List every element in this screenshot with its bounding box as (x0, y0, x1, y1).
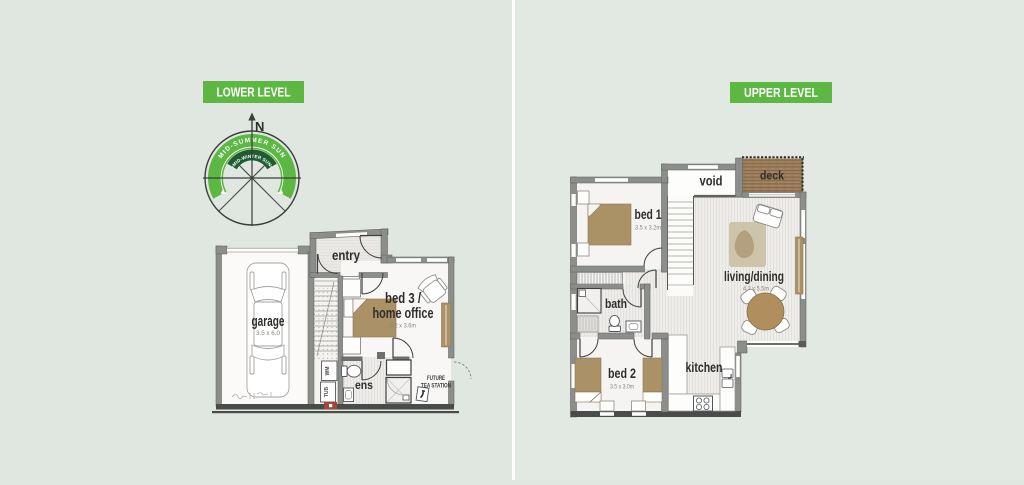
svg-text:deck: deck (760, 171, 785, 183)
svg-text:TEA STATION: TEA STATION (421, 383, 451, 390)
svg-text:entry: entry (332, 248, 360, 263)
svg-text:3.5 x 3.2m: 3.5 x 3.2m (635, 225, 661, 232)
svg-text:4.2 x 3.6m: 4.2 x 3.6m (390, 323, 416, 330)
svg-text:living/dining: living/dining (724, 269, 784, 284)
svg-text:LOWER LEVEL: LOWER LEVEL (217, 86, 291, 100)
svg-text:3.5 x 6.0: 3.5 x 6.0 (256, 330, 281, 337)
svg-text:WM: WM (325, 367, 331, 376)
svg-text:bed 2: bed 2 (608, 365, 636, 381)
svg-text:bed 1: bed 1 (635, 207, 662, 222)
svg-text:home office: home office (373, 306, 434, 322)
svg-text:void: void (700, 174, 723, 189)
svg-text:3.5 x 3.0m: 3.5 x 3.0m (610, 384, 634, 391)
svg-text:bed 3 /: bed 3 / (385, 291, 421, 307)
svg-text:ens: ens (355, 378, 373, 392)
svg-text:N: N (255, 119, 264, 134)
svg-text:bath: bath (605, 297, 627, 311)
svg-text:kitchen: kitchen (686, 360, 723, 375)
svg-text:UPPER LEVEL: UPPER LEVEL (744, 86, 818, 100)
svg-text:FUTURE: FUTURE (427, 375, 446, 382)
svg-text:TUB: TUB (324, 386, 330, 397)
svg-text:garage: garage (252, 313, 285, 330)
